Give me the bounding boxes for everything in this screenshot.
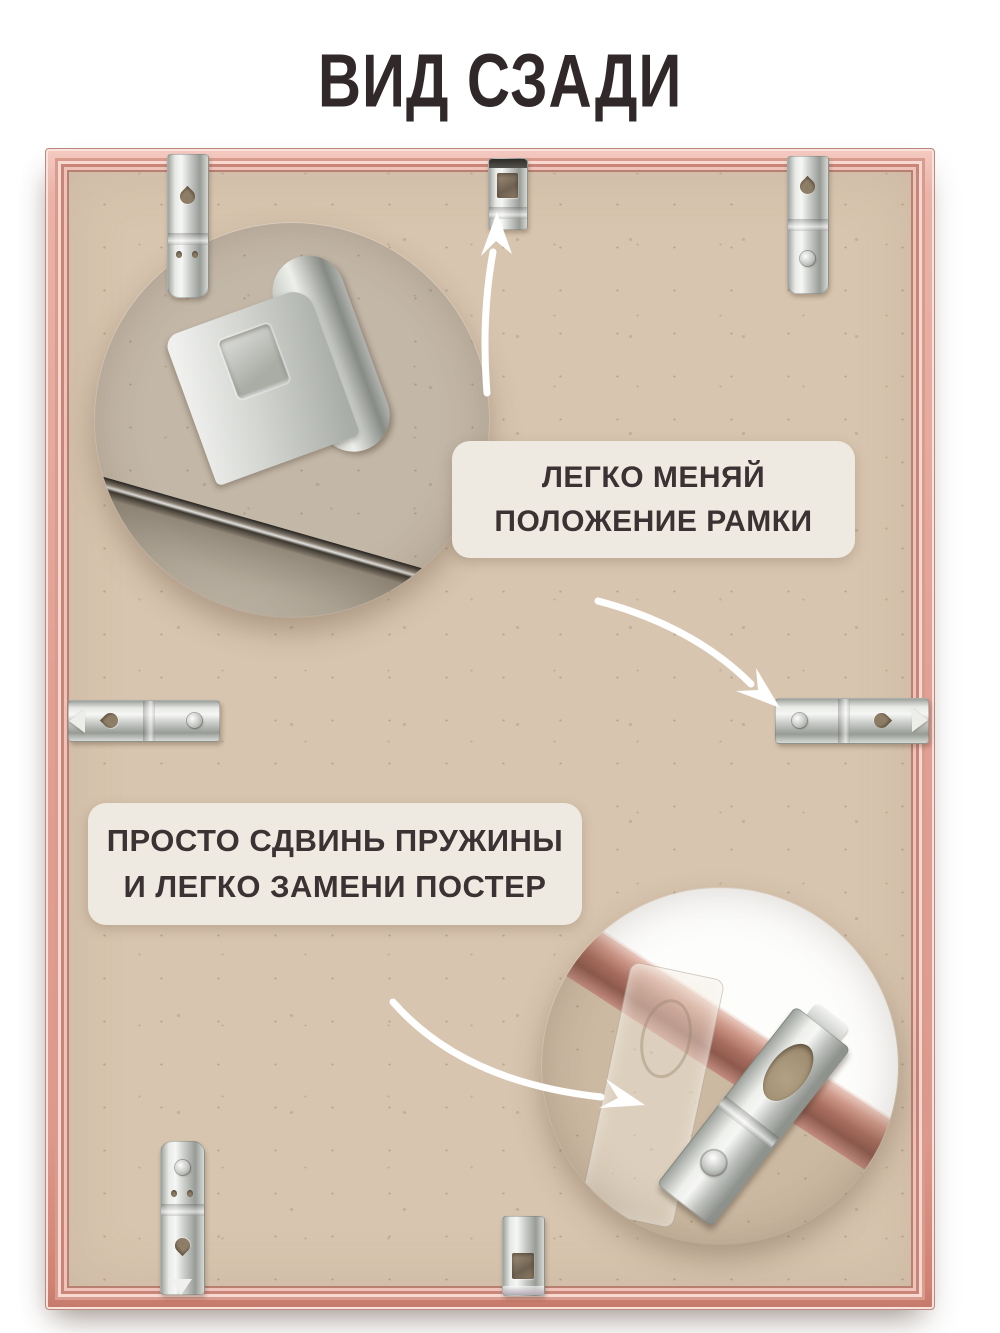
product-photo: ЛЕГКО МЕНЯЙ ПОЛОЖЕНИЕ РАМКИ ПРОСТО СДВИН…: [45, 148, 935, 1310]
clip-shadow-band: [489, 159, 527, 168]
square-hole: [497, 173, 518, 198]
square-hole: [512, 1253, 534, 1279]
hanging-bracket-top-right: [787, 156, 829, 294]
bracket-fold: [168, 233, 208, 245]
annotation-replace-poster: ПРОСТО СДВИНЬ ПРУЖИНЫ И ЛЕГКО ЗАМЕНИ ПОС…: [88, 803, 582, 925]
hanging-bracket-middle-right: [775, 698, 929, 744]
bracket-fold: [788, 219, 828, 231]
bracket-fold: [143, 701, 155, 741]
spring-clip-top-center: [488, 158, 528, 230]
spring-clip-bottom-center: [502, 1216, 545, 1296]
teardrop-hole: [100, 710, 121, 731]
pin-hole: [171, 1190, 177, 1197]
screw: [792, 713, 807, 728]
product-infographic: ВИД СЗАДИ: [0, 0, 1000, 1333]
hanging-bracket-middle-left: [68, 700, 220, 742]
hanging-bracket-top-left: [167, 154, 209, 298]
bracket-tab: [170, 1279, 192, 1295]
pin-hole: [176, 251, 182, 258]
screw: [800, 251, 815, 266]
hanging-bracket-bottom-left: [160, 1141, 205, 1295]
bracket-fold: [838, 699, 850, 743]
clip-foot: [503, 1286, 544, 1295]
teardrop-hole: [177, 186, 198, 207]
teardrop-hole: [871, 710, 892, 731]
imprint-hole-outline: [633, 994, 699, 1083]
annotation-line: ПРОСТО СДВИНЬ ПРУЖИНЫ: [107, 818, 564, 864]
screw: [187, 713, 202, 728]
pin-hole: [187, 1190, 193, 1197]
pin-hole: [192, 251, 198, 258]
annotation-line: ЛЕГКО МЕНЯЙ: [542, 456, 765, 500]
clip-fold: [489, 207, 527, 219]
page-title-text: ВИД СЗАДИ: [318, 38, 682, 124]
teardrop-hole: [172, 1235, 193, 1256]
bracket-tab: [69, 709, 85, 733]
detail-inset-top-left: [95, 223, 489, 617]
bracket-fold: [161, 1204, 204, 1216]
screw: [175, 1160, 190, 1175]
teardrop-hole: [797, 176, 818, 197]
annotation-line: ПОЛОЖЕНИЕ РАМКИ: [494, 500, 812, 544]
page-title: ВИД СЗАДИ: [0, 42, 1000, 120]
annotation-frame-position: ЛЕГКО МЕНЯЙ ПОЛОЖЕНИЕ РАМКИ: [452, 441, 855, 558]
bracket-tab: [912, 708, 928, 732]
annotation-line: И ЛЕГКО ЗАМЕНИ ПОСТЕР: [124, 864, 547, 910]
detail-inset-bottom-right: [542, 888, 898, 1244]
